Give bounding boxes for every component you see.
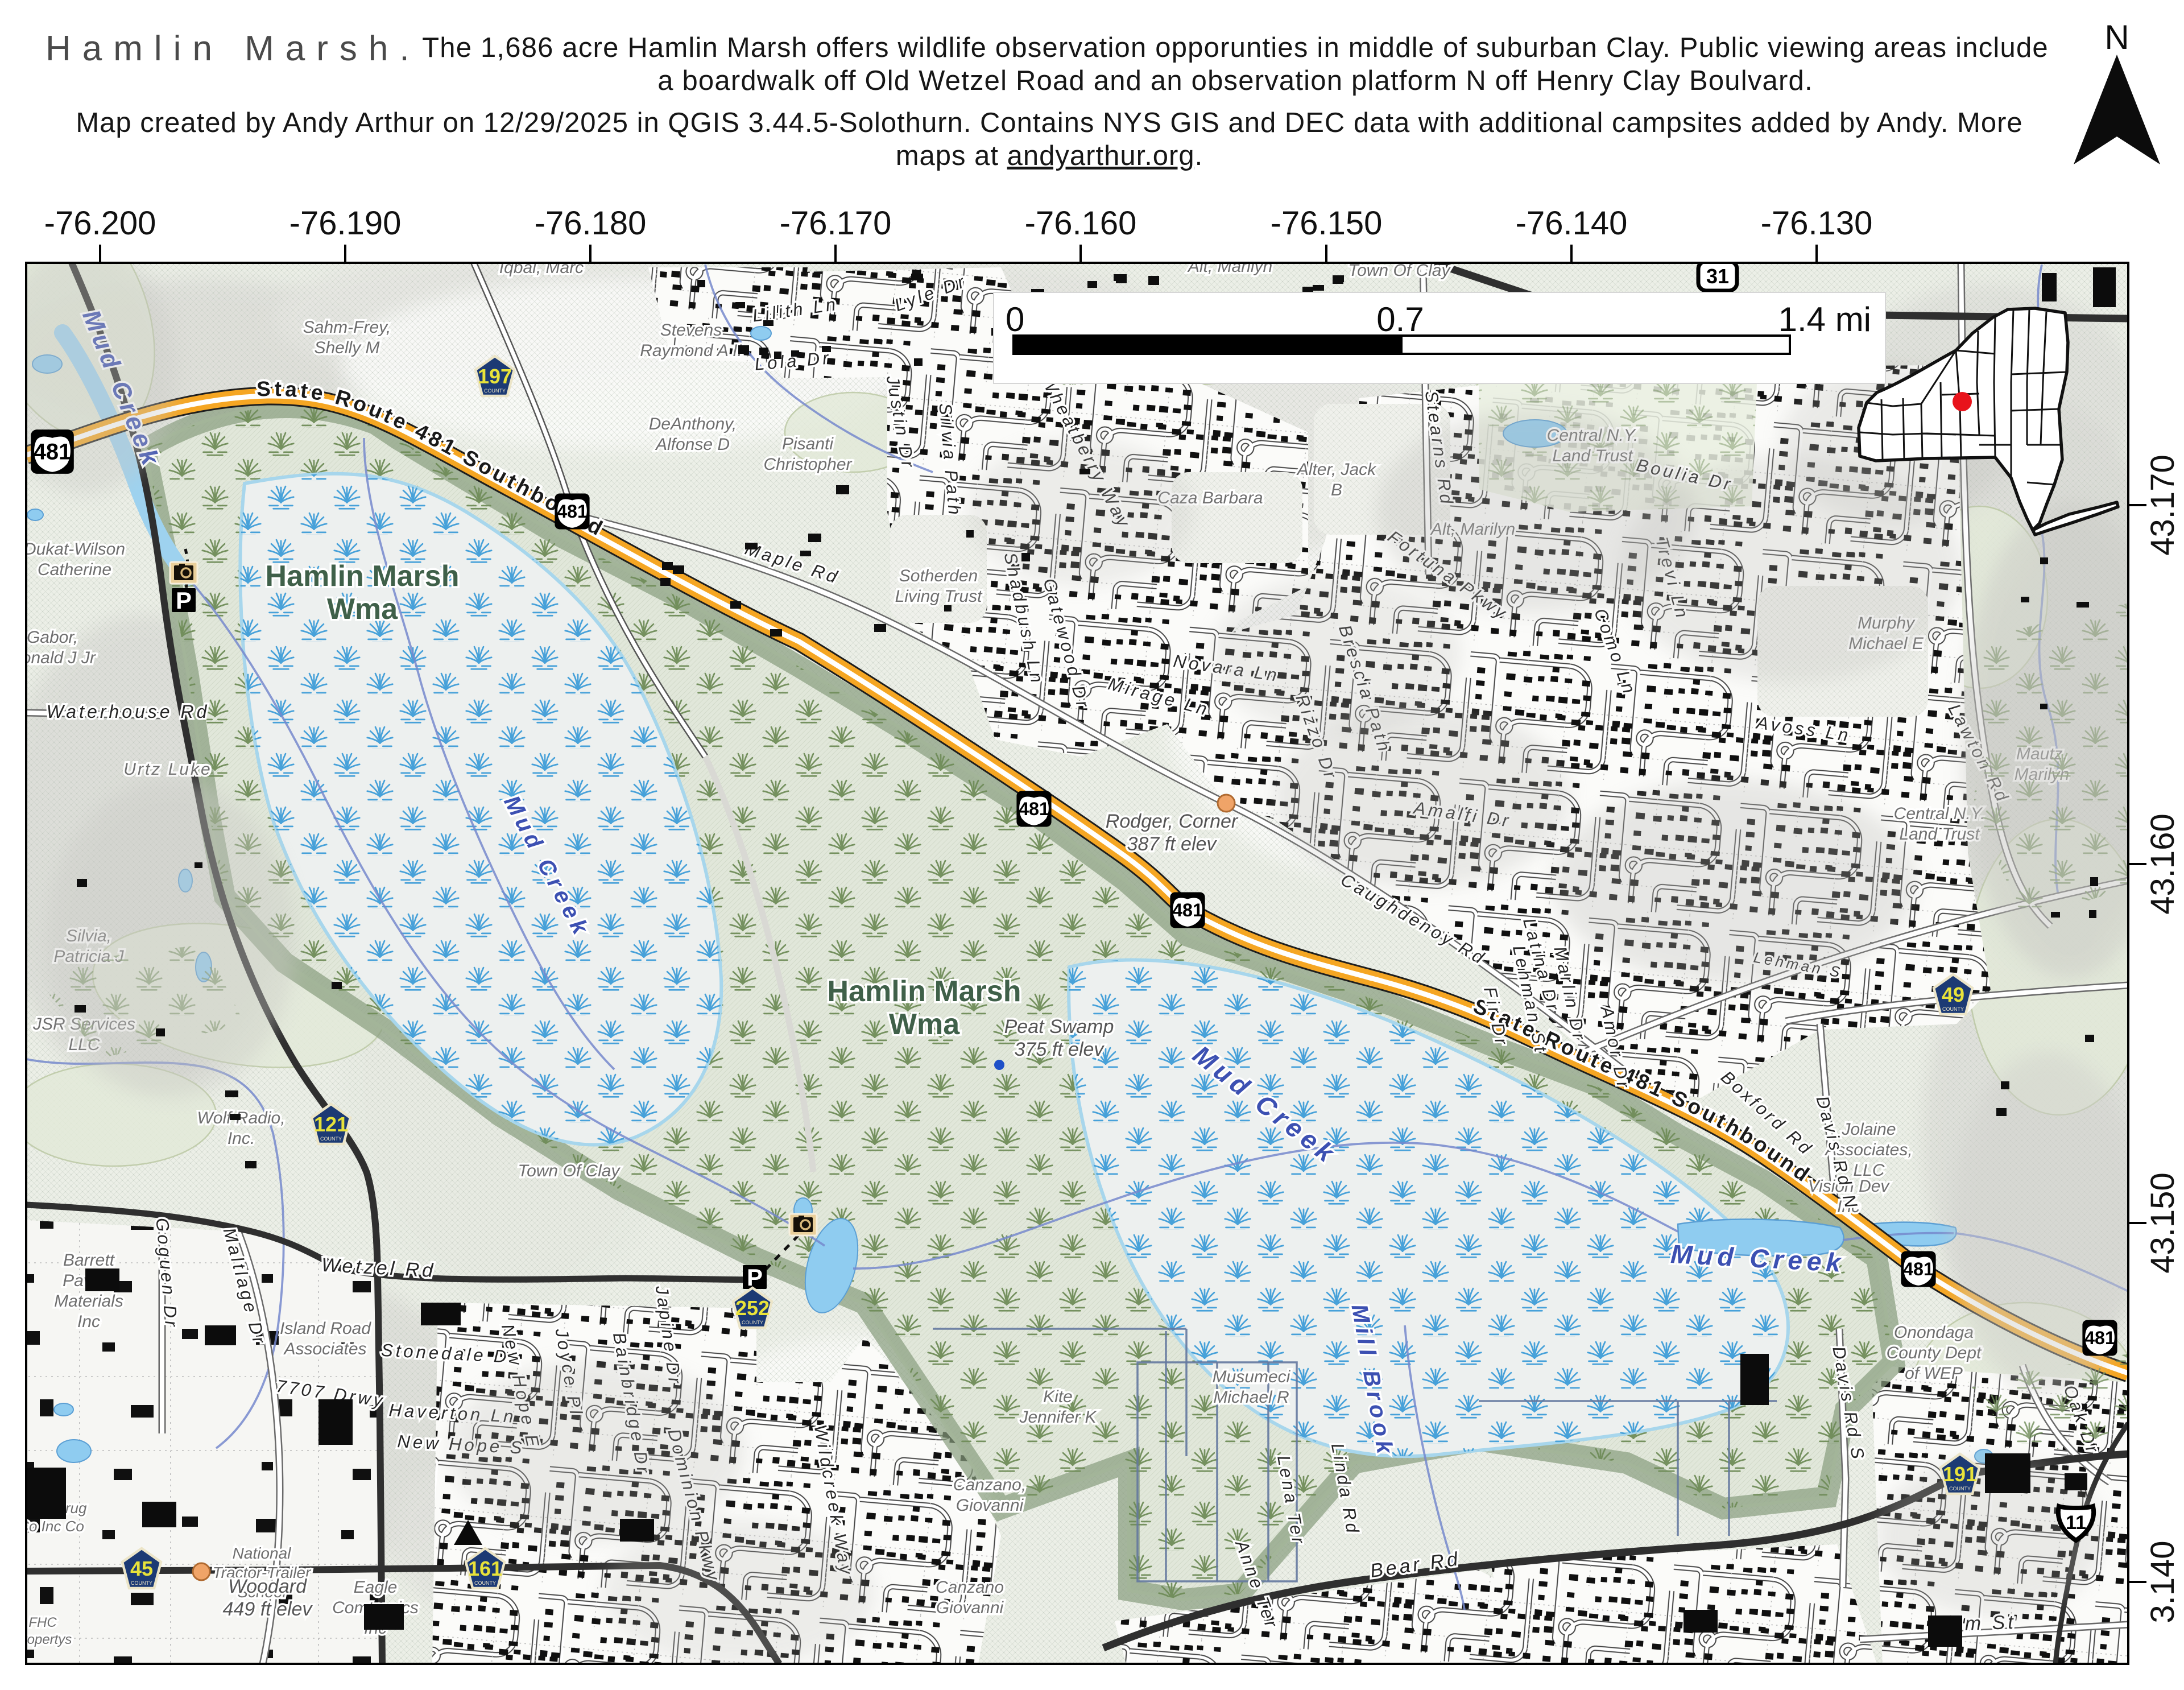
svg-text:Materials: Materials (54, 1292, 123, 1311)
svg-text:COUNTY: COUNTY (1942, 1006, 1964, 1012)
svg-text:Hamlin Marsh.: Hamlin Marsh. (45, 29, 421, 68)
svg-text:COUNTY: COUNTY (320, 1136, 342, 1142)
svg-text:481: 481 (1903, 1259, 1934, 1279)
svg-text:Hamlin Marsh: Hamlin Marsh (828, 975, 1021, 1008)
svg-text:County Dept: County Dept (1887, 1344, 1982, 1362)
svg-text:-76.150: -76.150 (1271, 205, 1383, 242)
svg-text:Giovanni: Giovanni (936, 1598, 1004, 1617)
svg-text:Alfonse D: Alfonse D (655, 435, 730, 454)
svg-text:Wma: Wma (327, 593, 398, 626)
svg-text:161: 161 (468, 1557, 502, 1580)
svg-text:Pisanti: Pisanti (782, 435, 834, 453)
svg-text:481: 481 (1019, 799, 1049, 819)
svg-text:COUNTY: COUNTY (1949, 1486, 1971, 1491)
svg-text:Onondaga: Onondaga (1894, 1323, 1974, 1342)
svg-text:481: 481 (34, 440, 72, 465)
svg-text:COUNTY: COUNTY (131, 1580, 152, 1586)
svg-text:COUNTY: COUNTY (742, 1320, 763, 1325)
svg-text:-76.190: -76.190 (289, 205, 402, 242)
svg-text:Rodger, Corner: Rodger, Corner (1106, 811, 1239, 832)
svg-text:Donald J Jr: Donald J Jr (9, 648, 96, 667)
svg-text:Living Trust: Living Trust (895, 587, 983, 606)
svg-text:Canzano: Canzano (936, 1578, 1004, 1597)
svg-text:Waterhouse Rd: Waterhouse Rd (47, 701, 210, 722)
svg-text:Associates: Associates (283, 1340, 366, 1358)
svg-text:Map created by Andy Arthur on: Map created by Andy Arthur on 12/29/2025… (76, 108, 2022, 138)
svg-text:1.4 mi: 1.4 mi (1778, 300, 1871, 338)
svg-text:Alter, Jack: Alter, Jack (1296, 460, 1377, 479)
svg-text:3.140: 3.140 (2144, 1540, 2181, 1623)
svg-text:-76.160: -76.160 (1025, 205, 1137, 242)
svg-text:Shelly M: Shelly M (314, 338, 379, 357)
svg-text:481: 481 (2084, 1328, 2115, 1348)
svg-text:Wolf Radio,: Wolf Radio, (197, 1109, 285, 1127)
svg-text:49: 49 (1942, 983, 1964, 1006)
svg-text:Eagle: Eagle (354, 1578, 398, 1597)
svg-text:121: 121 (314, 1113, 348, 1136)
svg-text:449 ft elev: 449 ft elev (223, 1598, 313, 1620)
svg-text:Woodard: Woodard (228, 1576, 307, 1597)
svg-text:Christopher: Christopher (763, 455, 852, 474)
svg-text:191: 191 (1943, 1462, 1977, 1486)
svg-text:COUNTY: COUNTY (474, 1580, 496, 1586)
svg-text:43.170: 43.170 (2144, 454, 2181, 555)
svg-text:-76.170: -76.170 (780, 205, 892, 242)
svg-text:Inc: Inc (77, 1312, 100, 1331)
svg-text:252: 252 (735, 1296, 770, 1320)
svg-text:43.160: 43.160 (2144, 813, 2181, 914)
svg-text:Dukat-Wilson: Dukat-Wilson (24, 540, 125, 559)
svg-text:Musumeci: Musumeci (1213, 1367, 1291, 1386)
svg-text:31: 31 (1706, 265, 1729, 288)
svg-text:Co Inc Co: Co Inc Co (18, 1518, 84, 1535)
svg-text:a boardwalk off Old Wetzel Roa: a boardwalk off Old Wetzel Road and an o… (657, 65, 1813, 96)
svg-text:-76.130: -76.130 (1761, 205, 1873, 242)
svg-text:Canzano,: Canzano, (953, 1476, 1026, 1494)
svg-text:481: 481 (557, 501, 588, 522)
svg-text:Urtz Luke: Urtz Luke (123, 760, 212, 779)
svg-text:Hamlin Marsh: Hamlin Marsh (266, 560, 460, 593)
svg-text:387 ft elev: 387 ft elev (1127, 833, 1218, 855)
svg-text:Kite: Kite (1043, 1387, 1073, 1406)
svg-text:Town Of Clay: Town Of Clay (518, 1162, 621, 1180)
svg-text:Island Road: Island Road (280, 1319, 371, 1338)
svg-text:P: P (747, 1264, 763, 1291)
svg-text:B: B (1331, 481, 1342, 499)
svg-text:DeAnthony,: DeAnthony, (649, 415, 737, 433)
svg-text:-76.200: -76.200 (44, 205, 156, 242)
svg-text:481: 481 (1172, 900, 1203, 920)
svg-text:Iqbal, Marc: Iqbal, Marc (499, 258, 584, 277)
svg-text:Jennifer K: Jennifer K (1019, 1408, 1097, 1427)
svg-text:COUNTY: COUNTY (484, 388, 506, 394)
svg-text:Catherine: Catherine (38, 560, 111, 579)
svg-text:Land Trust: Land Trust (1899, 825, 1980, 844)
svg-text:N: N (2104, 18, 2129, 56)
svg-text:Inc.: Inc. (227, 1129, 255, 1148)
svg-text:-76.180: -76.180 (535, 205, 647, 242)
svg-text:Peat Swamp: Peat Swamp (1004, 1016, 1114, 1038)
svg-text:43.150: 43.150 (2144, 1172, 2181, 1273)
svg-text:Alt, Marilyn: Alt, Marilyn (1187, 257, 1272, 276)
svg-text:0.7: 0.7 (1376, 300, 1424, 338)
svg-text:Raymond A II: Raymond A II (640, 341, 742, 360)
svg-text:Wma: Wma (889, 1008, 960, 1041)
svg-text:197: 197 (478, 365, 512, 388)
svg-text:Sotherden: Sotherden (899, 567, 978, 585)
svg-text:-76.140: -76.140 (1516, 205, 1628, 242)
svg-text:Stevens: Stevens (660, 321, 722, 340)
svg-text:Sahm-Frey,: Sahm-Frey, (303, 318, 391, 337)
svg-text:FHC: FHC (28, 1615, 57, 1630)
svg-text:P: P (176, 587, 192, 614)
svg-text:375 ft elev: 375 ft elev (1015, 1039, 1105, 1060)
svg-text:11: 11 (2066, 1512, 2086, 1534)
svg-text:National: National (233, 1544, 292, 1562)
svg-text:Gabor,: Gabor, (27, 628, 78, 647)
svg-text:Giovanni: Giovanni (956, 1496, 1024, 1515)
svg-text:The 1,686 acre Hamlin Marsh of: The 1,686 acre Hamlin Marsh offers wildl… (422, 32, 2049, 63)
svg-text:Jolaine: Jolaine (1841, 1120, 1896, 1139)
svg-text:45: 45 (130, 1557, 153, 1580)
svg-text:0: 0 (1006, 300, 1024, 338)
svg-text:of WEP: of WEP (1905, 1364, 1963, 1383)
svg-text:Propertys: Propertys (14, 1632, 72, 1647)
svg-text:Michael R: Michael R (1213, 1388, 1289, 1407)
svg-text:Barrett: Barrett (63, 1251, 115, 1270)
svg-text:maps at andyarthur.org.: maps at andyarthur.org. (896, 141, 1203, 171)
